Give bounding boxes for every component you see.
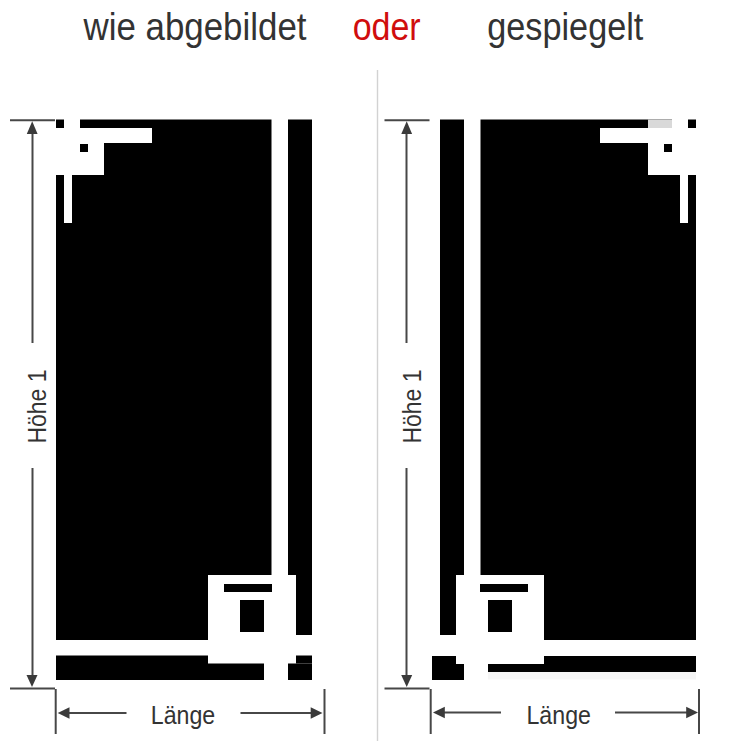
svg-text:wie abgebildet: wie abgebildet: [83, 6, 307, 48]
svg-text:gespiegelt: gespiegelt: [487, 6, 643, 48]
svg-text:oder: oder: [353, 6, 421, 48]
svg-text:Höhe 1: Höhe 1: [22, 370, 52, 444]
svg-text:Länge: Länge: [151, 700, 216, 730]
svg-text:Höhe 1: Höhe 1: [397, 370, 427, 444]
svg-text:Länge: Länge: [526, 700, 591, 730]
